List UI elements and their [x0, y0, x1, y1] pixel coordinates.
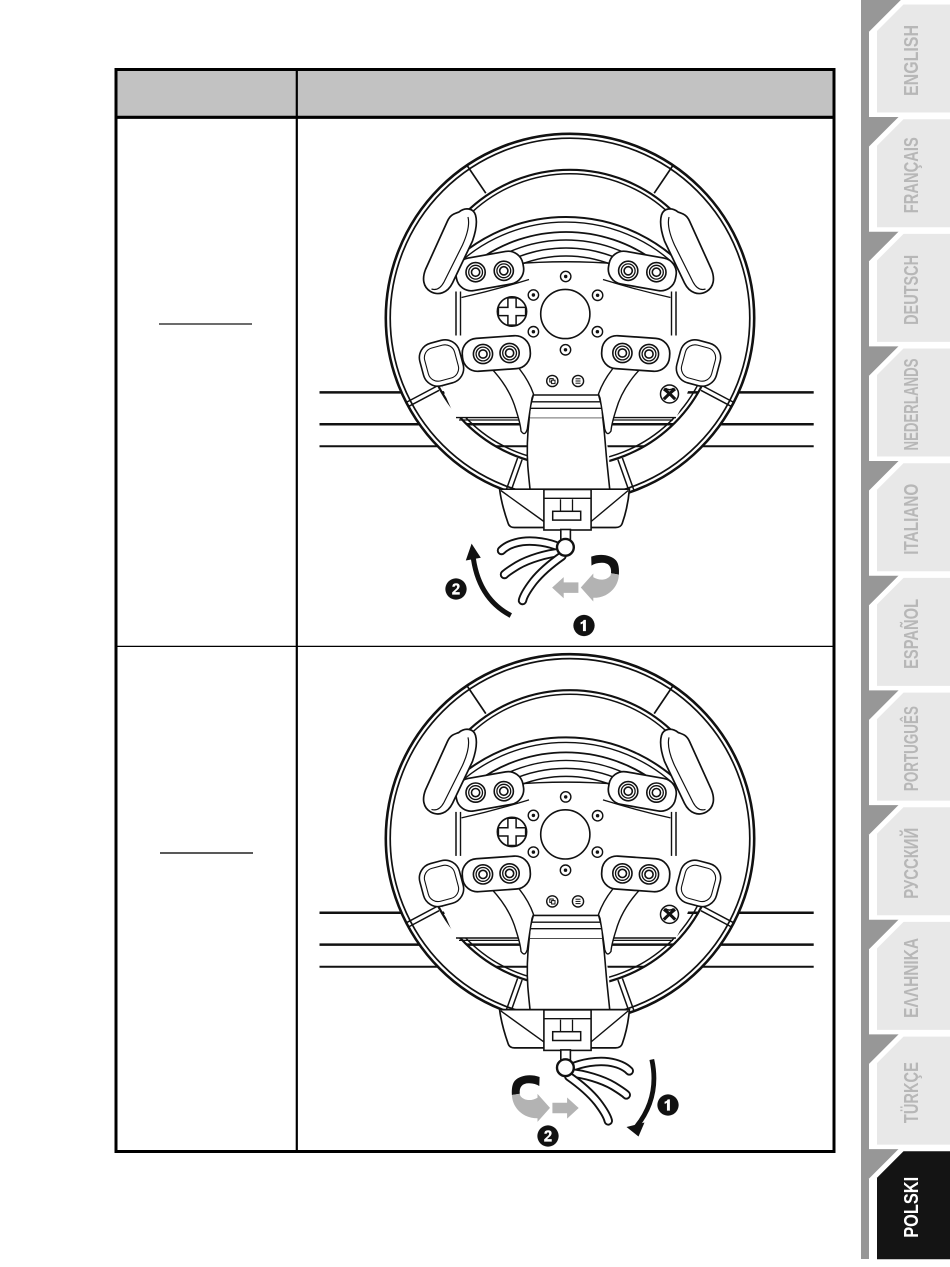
svg-text:PORTUGUÊS: PORTUGUÊS [899, 706, 923, 791]
svg-text:РУССКИЙ: РУССКИЙ [899, 828, 923, 899]
svg-text:TÜRKÇE: TÜRKÇE [900, 1062, 923, 1123]
svg-text:ENGLISH: ENGLISH [900, 25, 923, 96]
svg-text:DEUTSCH: DEUTSCH [900, 255, 923, 325]
svg-text:ΕΛΛΗΝΙΚΑ: ΕΛΛΗΝΙΚΑ [900, 938, 923, 1018]
svg-text:FRANÇAIS: FRANÇAIS [900, 137, 923, 213]
svg-text:POLSKI: POLSKI [900, 1177, 923, 1238]
svg-text:NEDERLANDS: NEDERLANDS [900, 359, 923, 451]
svg-text:ITALIANO: ITALIANO [900, 484, 923, 555]
svg-text:ESPAÑOL: ESPAÑOL [900, 599, 923, 669]
